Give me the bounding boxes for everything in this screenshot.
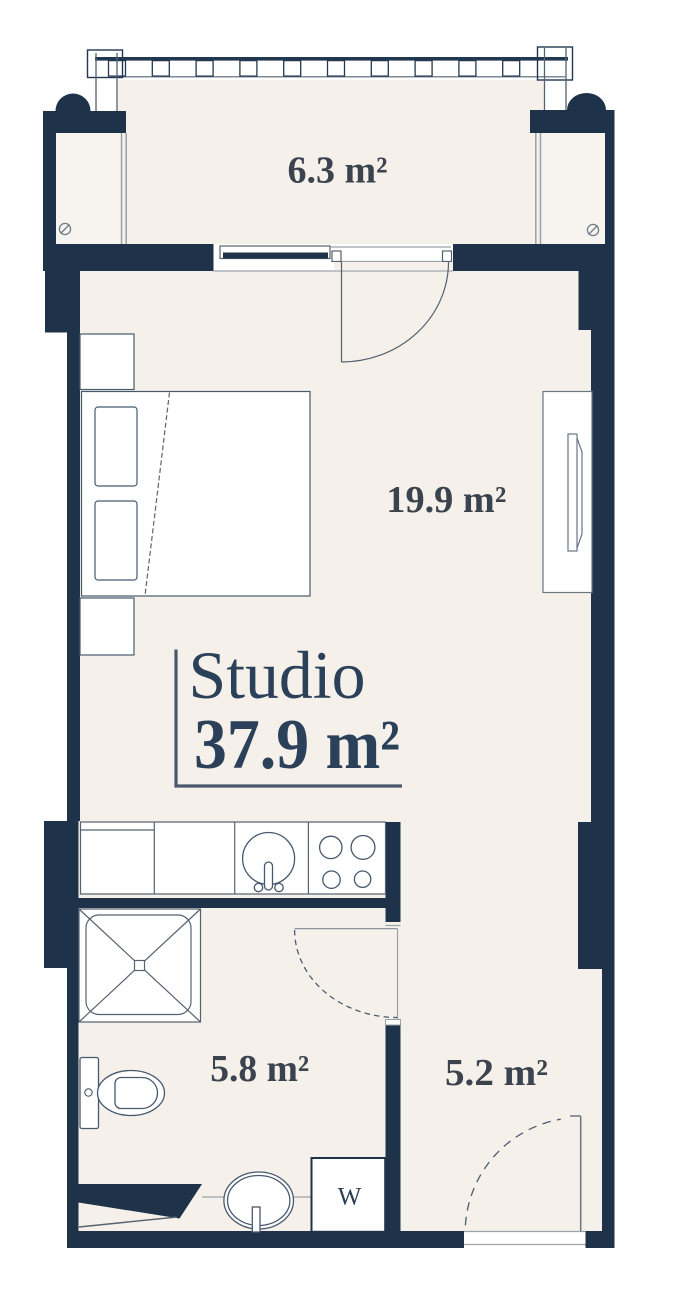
svg-text:37.9 m²: 37.9 m² xyxy=(194,706,400,784)
svg-text:19.9 m²: 19.9 m² xyxy=(386,479,506,521)
svg-text:5.2 m²: 5.2 m² xyxy=(445,1052,548,1094)
svg-text:6.3 m²: 6.3 m² xyxy=(288,150,388,192)
svg-text:5.8 m²: 5.8 m² xyxy=(210,1048,309,1090)
svg-text:Studio: Studio xyxy=(189,637,366,713)
svg-text:W: W xyxy=(338,1184,362,1211)
